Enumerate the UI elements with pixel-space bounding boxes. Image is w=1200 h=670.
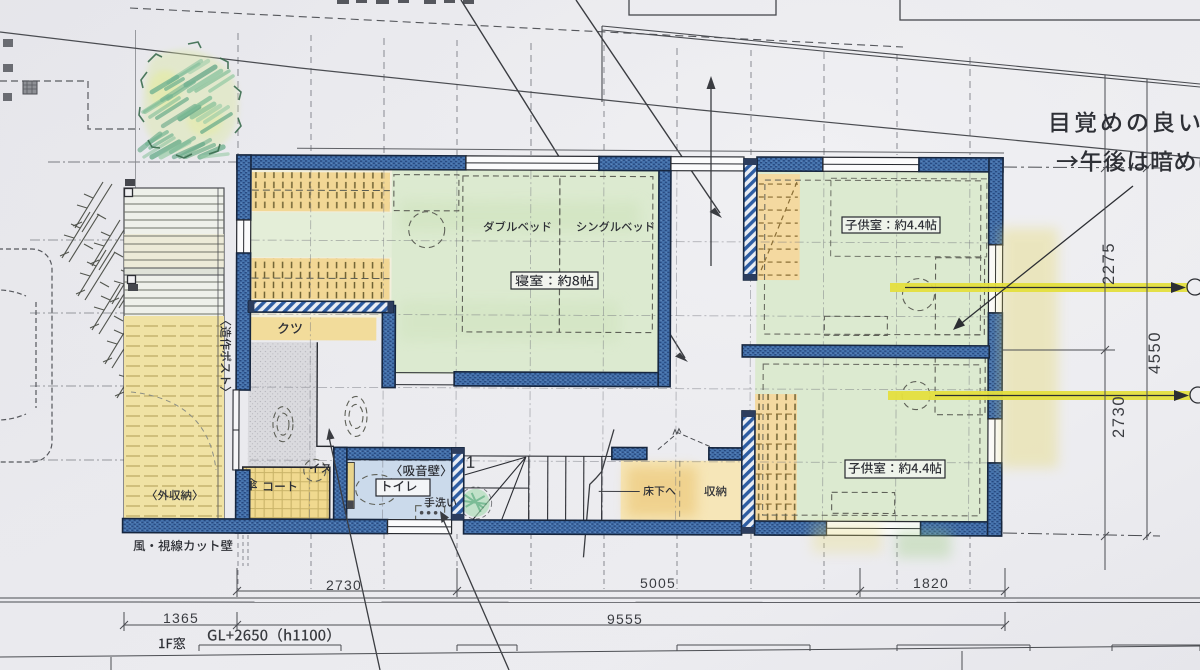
svg-text:1: 1 xyxy=(466,453,476,472)
svg-text:2275: 2275 xyxy=(1100,242,1118,285)
svg-text:2730: 2730 xyxy=(1110,395,1128,438)
svg-text:1820: 1820 xyxy=(913,575,949,591)
svg-text:5005: 5005 xyxy=(640,575,676,591)
svg-text:2730: 2730 xyxy=(326,577,362,593)
svg-text:9555: 9555 xyxy=(607,611,643,627)
svg-text:4550: 4550 xyxy=(1146,331,1164,374)
svg-text:1365: 1365 xyxy=(163,610,199,626)
